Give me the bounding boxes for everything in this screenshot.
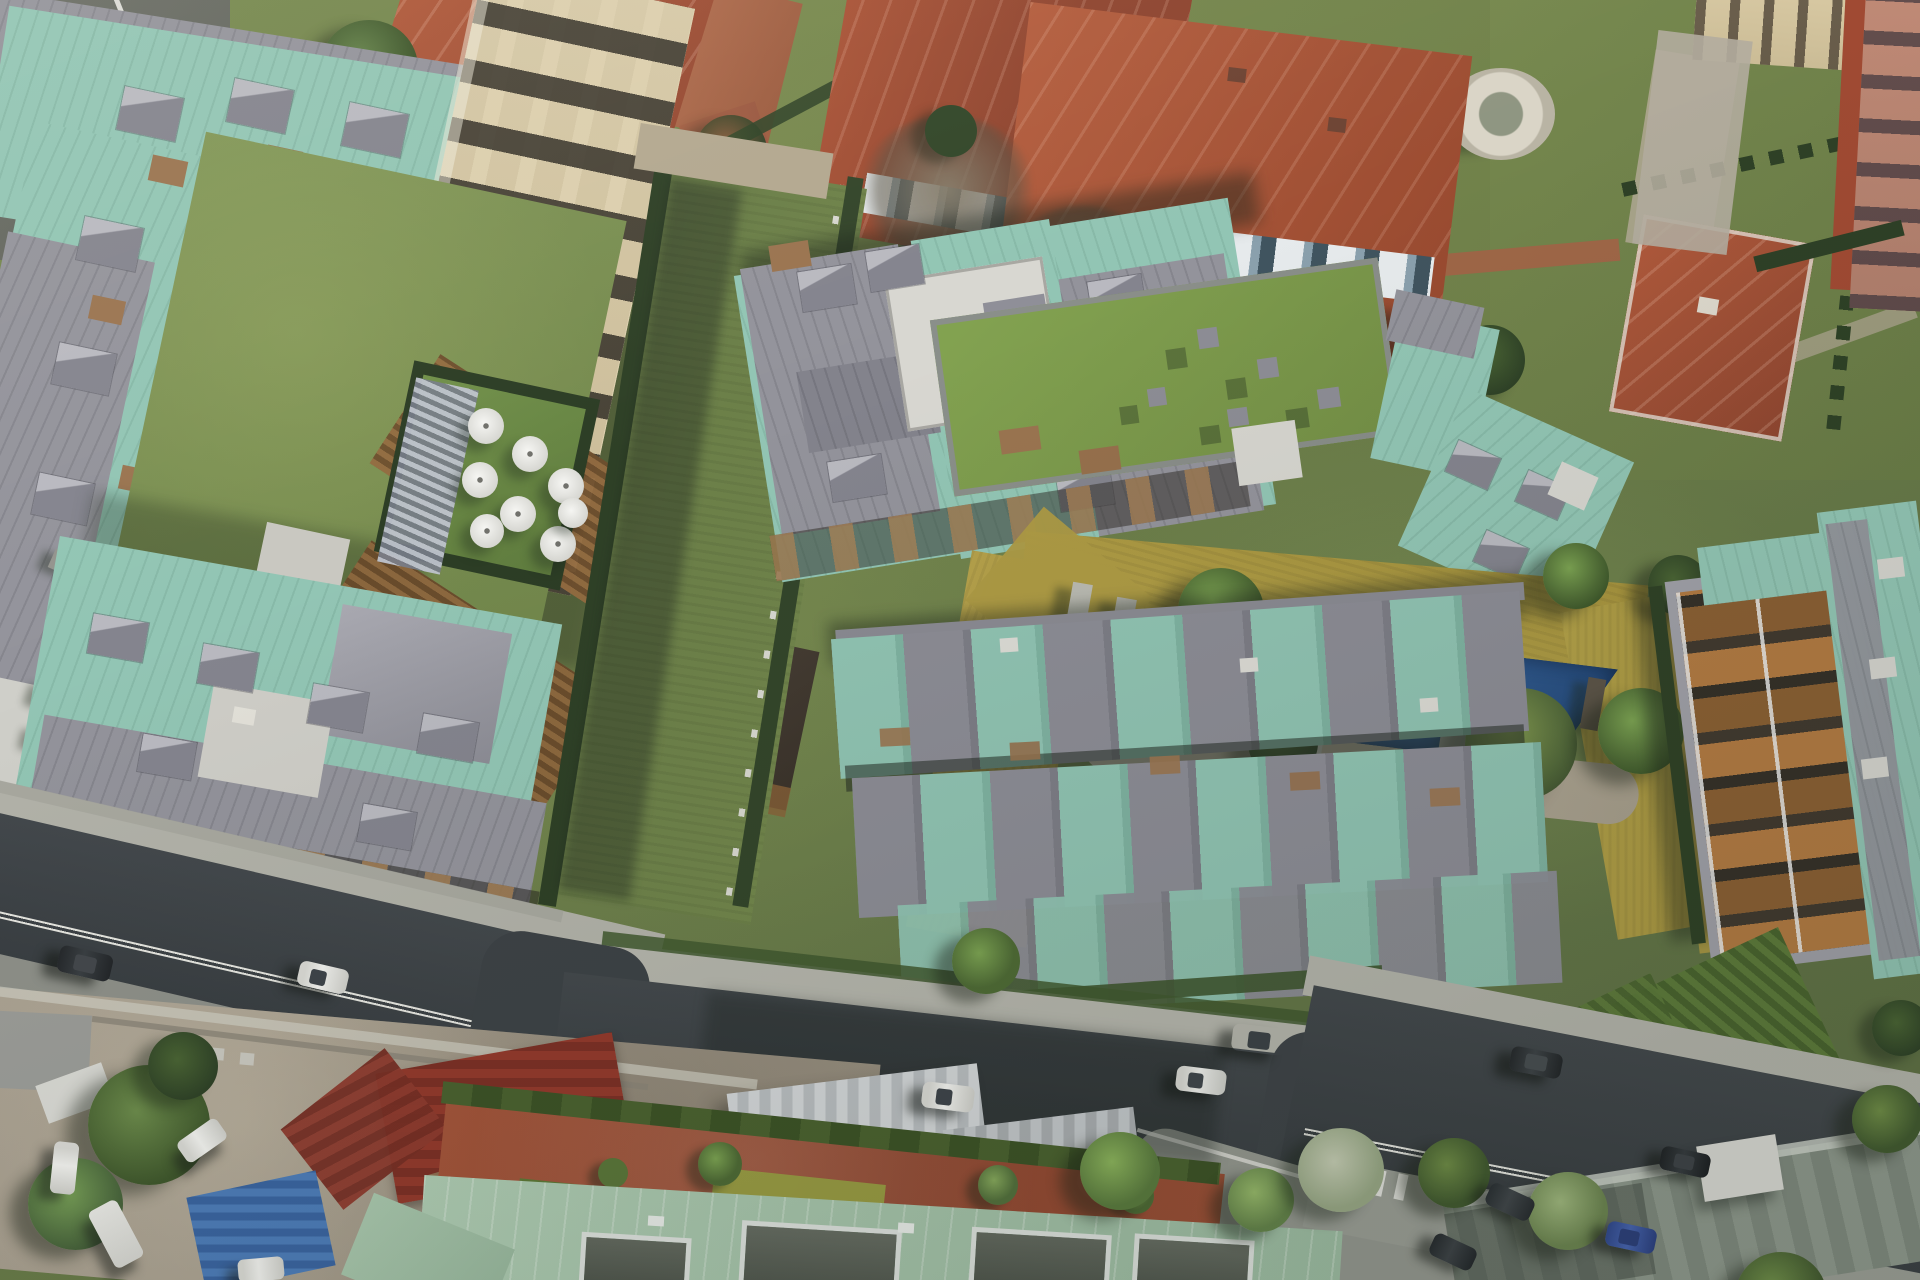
color-grade-overlay	[0, 0, 1920, 1280]
aerial-site-render	[0, 0, 1920, 1280]
scene-canvas	[0, 0, 1920, 1280]
